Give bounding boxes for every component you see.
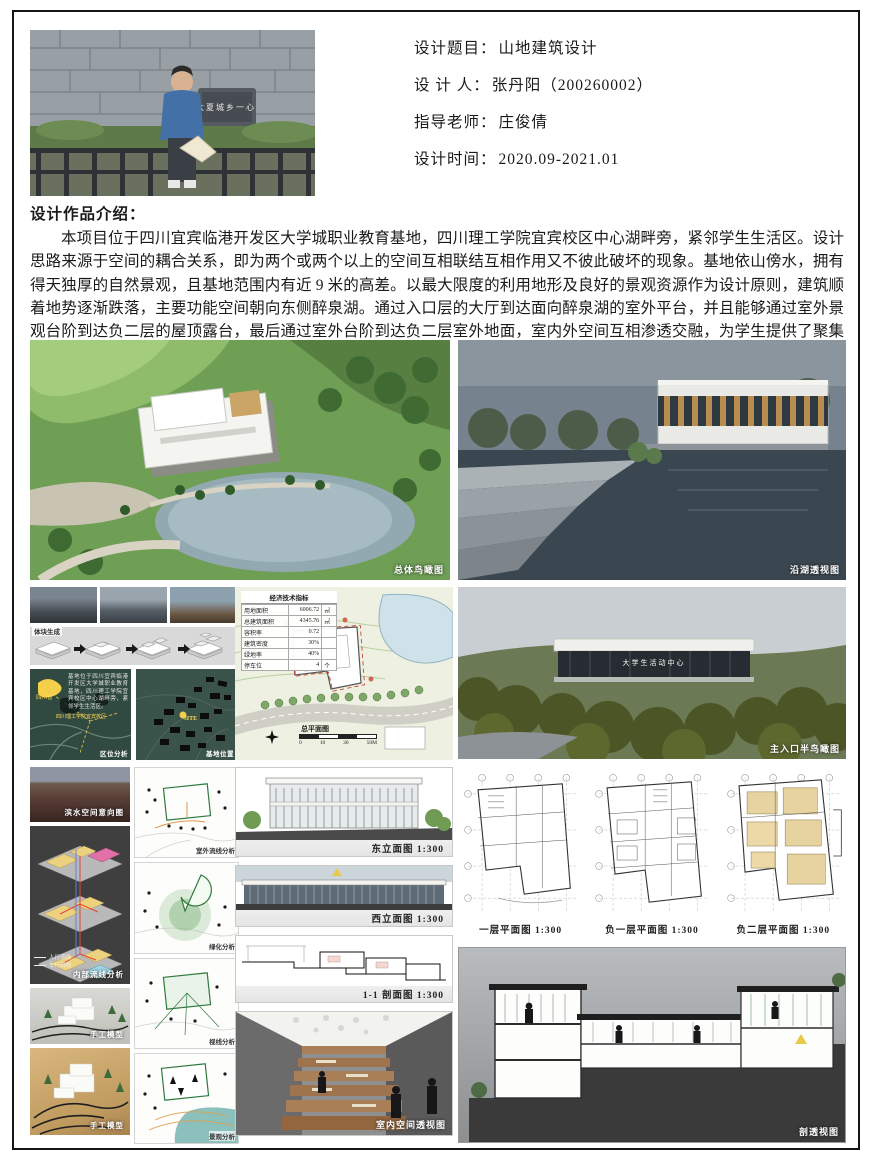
east-elevation-caption: 东立面图 1:300 — [371, 841, 444, 855]
legend-label: 人行流线 — [49, 954, 71, 962]
intro-heading: 设计作品介绍： — [30, 202, 844, 224]
greenery-diagram: 绿化分析 — [134, 862, 239, 953]
meta-label: 设计时间： — [414, 151, 497, 168]
scale-tick: 30 — [343, 740, 349, 746]
model-caption-1: 手工模型 — [90, 1029, 124, 1040]
floor-plans-row: 一层平面图 1:300 负一层平面图 1:300 — [458, 767, 846, 939]
east-elevation-caption-bar: 东立面图 1:300 — [236, 840, 452, 856]
west-elevation: 西立面图 1:300 — [235, 865, 453, 927]
econ-value: 4345.76 — [289, 616, 322, 627]
meta-designer-row: 设 计 人：张丹阳（200260002） — [414, 73, 854, 95]
scale-tick: 50M — [367, 740, 377, 746]
plan-basement-1-art — [589, 767, 714, 923]
reference-photos — [30, 587, 237, 623]
waterfront-photo: 滨水空间意向图 — [30, 767, 130, 822]
campus-label: 四川理工学院宜宾校区 — [56, 713, 106, 720]
reference-photo-2 — [100, 587, 167, 623]
econ-key: 用地面积 — [242, 605, 289, 616]
econ-key: 总建筑面积 — [242, 616, 289, 627]
model-photo-2: 手工模型 — [30, 1048, 130, 1135]
axon-caption: 内部流线分析 — [73, 969, 124, 980]
aerial-render-art — [30, 340, 450, 580]
outdoor-circulation-diagram: 室外流线分析 — [134, 767, 239, 858]
lakeside-render: 沿湖透视图 — [458, 340, 846, 580]
entrance-caption: 主入口半鸟瞰图 — [770, 742, 840, 755]
drawings-column: 东立面图 1:300 西立面图 1:300 — [235, 767, 453, 1144]
diagram-caption: 景观分析 — [209, 1131, 235, 1141]
econ-key: 容积率 — [242, 627, 289, 638]
econ-value: 30% — [289, 638, 322, 649]
meta-label: 设 计 人： — [414, 77, 490, 94]
location-map: 基地位于四川宜宾临港开发区大学城职业教育基地，四川理工学院宜宾校区中心湖畔旁，紧… — [30, 669, 131, 760]
econ-row: 建筑密度30% — [242, 638, 337, 649]
econ-unit: 个 — [322, 660, 337, 671]
meta-value: 2020.09-2021.01 — [499, 151, 620, 168]
circulation-axon: 人行流线 车行流线 内部流线分析 — [30, 826, 130, 984]
presentation-board: 大夏城乡一心 — [12, 10, 860, 1150]
section-1-1: 1-1 剖面图 1:300 — [235, 935, 453, 1003]
interior-perspective: 室内空间透视图 — [235, 1011, 453, 1136]
econ-key: 停车位 — [242, 660, 289, 671]
location-map-note: 基地位于四川宜宾临港开发区大学城职业教育基地，四川理工学院宜宾校区中心湖畔旁，紧… — [68, 674, 128, 711]
meta-title-row: 设计题目：山地建筑设计 — [414, 36, 854, 58]
plan-level-1-art — [458, 767, 583, 923]
legend-item: 车行流线 — [34, 962, 71, 970]
section-1-1-caption-bar: 1-1 剖面图 1:300 — [236, 986, 452, 1002]
legend-item: 人行流线 — [34, 954, 71, 962]
site-location-map: SITE 基地位置 — [136, 669, 237, 760]
site-plan-caption: 总平面图 — [301, 724, 329, 734]
entrance-sign-text: 大学生活动中心 — [623, 658, 686, 667]
west-elevation-art — [236, 866, 452, 910]
diagram-caption: 视线分析 — [209, 1036, 235, 1046]
east-elevation-art — [236, 768, 452, 840]
section-perspective-art — [459, 948, 845, 1142]
diagram-right-column: 室外流线分析 绿化分析 视线分析 — [134, 767, 239, 1144]
section-perspective: 剖透视图 — [458, 947, 846, 1143]
econ-unit — [322, 649, 337, 660]
analysis-column: 体块生成 — [30, 587, 237, 760]
econ-value: 40% — [289, 649, 322, 660]
meta-date-row: 设计时间：2020.09-2021.01 — [414, 147, 854, 169]
plan-basement-2: 负二层平面图 1:300 — [721, 767, 846, 939]
author-photo: 大夏城乡一心 — [30, 30, 315, 196]
legend-swatch-blue — [34, 965, 46, 966]
site-plan: 经济技术指标 用地面积6006.72㎡ 总建筑面积4345.76㎡ 容积率0.7… — [235, 587, 453, 760]
location-map-caption: 区位分析 — [100, 748, 128, 758]
section-perspective-caption: 剖透视图 — [799, 1125, 839, 1138]
sightline-diagram: 视线分析 — [134, 958, 239, 1049]
diagram-block: 滨水空间意向图 — [30, 767, 237, 1144]
aerial-render: 总体鸟瞰图 — [30, 340, 450, 580]
interior-perspective-art — [236, 1012, 452, 1135]
plan-basement-1-caption: 负一层平面图 1:300 — [589, 923, 714, 939]
massing-label: 体块生成 — [32, 626, 62, 636]
site-marker: SITE — [183, 716, 197, 722]
econ-row: 用地面积6006.72㎡ — [242, 605, 337, 616]
plan-basement-2-caption: 负二层平面图 1:300 — [721, 923, 846, 939]
diagram-caption: 室外流线分析 — [196, 845, 235, 855]
section-1-1-art — [236, 936, 452, 986]
waterfront-caption: 滨水空间意向图 — [65, 807, 125, 818]
econ-key: 建筑密度 — [242, 638, 289, 649]
scale-tick: 0 — [299, 740, 302, 746]
province-label: 四川省 — [36, 693, 53, 701]
reference-photo-3 — [170, 587, 237, 623]
meta-advisor-row: 指导老师：庄俊倩 — [414, 110, 854, 132]
econ-value: 0.72 — [289, 627, 322, 638]
author-photo-art: 大夏城乡一心 — [30, 30, 315, 196]
econ-unit: ㎡ — [322, 616, 337, 627]
economic-indicators-table: 经济技术指标 用地面积6006.72㎡ 总建筑面积4345.76㎡ 容积率0.7… — [241, 591, 337, 671]
diagram-left-column: 滨水空间意向图 — [30, 767, 130, 1144]
econ-unit — [322, 627, 337, 638]
plan-level-1-caption: 一层平面图 1:300 — [458, 923, 583, 939]
meta-label: 设计题目： — [414, 40, 497, 57]
axon-legend: 人行流线 车行流线 — [34, 954, 71, 971]
legend-swatch-red — [34, 957, 46, 958]
scale-bar-segments — [299, 734, 377, 739]
econ-row: 总建筑面积4345.76㎡ — [242, 616, 337, 627]
site-map-art — [136, 669, 237, 760]
project-meta: 设计题目：山地建筑设计 设 计 人：张丹阳（200260002） 指导老师：庄俊… — [414, 36, 854, 184]
lakeside-render-art — [458, 340, 846, 580]
econ-value: 4 — [289, 660, 322, 671]
entrance-render: 大学生活动中心 主入口半鸟瞰图 — [458, 587, 846, 759]
meta-value: 庄俊倩 — [499, 114, 549, 131]
model-photo-1: 手工模型 — [30, 988, 130, 1044]
econ-row: 停车位4个 — [242, 660, 337, 671]
west-elevation-caption: 西立面图 1:300 — [371, 911, 444, 925]
meta-value: 山地建筑设计 — [499, 40, 598, 57]
scale-bar-ticks: 0 10 30 50M — [299, 740, 377, 746]
lakeside-caption: 沿湖透视图 — [790, 563, 840, 576]
plan-level-1: 一层平面图 1:300 — [458, 767, 583, 939]
aerial-caption: 总体鸟瞰图 — [394, 563, 444, 576]
econ-value: 6006.72 — [289, 605, 322, 616]
econ-unit — [322, 638, 337, 649]
diagram-caption: 绿化分析 — [209, 941, 235, 951]
econ-title: 经济技术指标 — [241, 591, 337, 604]
svg-text:大夏城乡一心: 大夏城乡一心 — [196, 102, 256, 112]
meta-label: 指导老师： — [414, 114, 497, 131]
plan-basement-1: 负一层平面图 1:300 — [589, 767, 714, 939]
econ-key: 绿地率 — [242, 649, 289, 660]
east-elevation: 东立面图 1:300 — [235, 767, 453, 857]
scale-bar: 0 10 30 50M — [299, 734, 377, 746]
econ-row: 容积率0.72 — [242, 627, 337, 638]
scale-tick: 10 — [320, 740, 326, 746]
landscape-diagram: 景观分析 — [134, 1053, 239, 1144]
massing-diagram: 体块生成 — [30, 627, 237, 665]
econ-row: 绿地率40% — [242, 649, 337, 660]
reference-photo-1 — [30, 587, 97, 623]
west-elevation-caption-bar: 西立面图 1:300 — [236, 910, 452, 926]
legend-label: 车行流线 — [49, 962, 71, 970]
maps-row: 基地位于四川宜宾临港开发区大学城职业教育基地，四川理工学院宜宾校区中心湖畔旁，紧… — [30, 669, 237, 760]
model-caption-2: 手工模型 — [90, 1120, 124, 1131]
site-map-caption: 基地位置 — [206, 748, 234, 758]
interior-caption: 室内空间透视图 — [376, 1118, 446, 1131]
entrance-render-art: 大学生活动中心 — [458, 587, 846, 759]
meta-value: 张丹阳（200260002） — [492, 77, 653, 94]
section-1-1-caption: 1-1 剖面图 1:300 — [363, 987, 444, 1001]
compass-icon — [265, 730, 279, 744]
econ-unit: ㎡ — [322, 605, 337, 616]
plan-basement-2-art — [721, 767, 846, 923]
